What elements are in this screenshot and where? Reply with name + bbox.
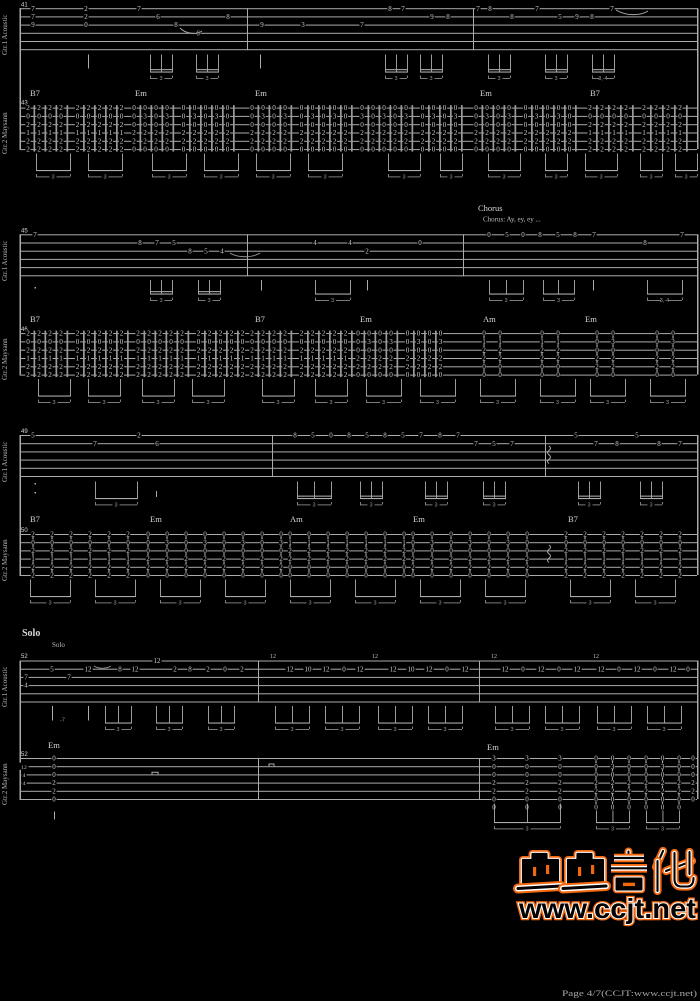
svg-text:5: 5 <box>558 13 562 21</box>
svg-text:7: 7 <box>93 440 97 448</box>
svg-text:0: 0 <box>393 104 397 112</box>
svg-text:Am: Am <box>483 314 496 324</box>
svg-text:2: 2 <box>272 371 276 379</box>
svg-text:2: 2 <box>279 563 283 571</box>
svg-text:1: 1 <box>482 338 486 346</box>
svg-text:3: 3 <box>382 113 386 121</box>
svg-text:0: 0 <box>482 330 486 338</box>
svg-text:1: 1 <box>109 129 113 137</box>
svg-text:2: 2 <box>624 104 628 112</box>
svg-text:5: 5 <box>204 247 208 255</box>
svg-text:12: 12 <box>670 665 678 673</box>
svg-text:2: 2 <box>389 355 393 363</box>
svg-text:2: 2 <box>158 346 162 354</box>
svg-text:2: 2 <box>300 371 304 379</box>
svg-text:2: 2 <box>524 137 528 145</box>
svg-text:2: 2 <box>602 572 606 580</box>
svg-text:2: 2 <box>26 137 30 145</box>
svg-text:3: 3 <box>103 175 106 181</box>
svg-text:2: 2 <box>485 129 489 137</box>
svg-text:2: 2 <box>197 346 201 354</box>
svg-text:7: 7 <box>592 231 596 239</box>
svg-text:5: 5 <box>311 432 315 440</box>
svg-text:2: 2 <box>76 371 80 379</box>
svg-text:8: 8 <box>643 239 647 247</box>
svg-text:2: 2 <box>52 787 56 795</box>
svg-text:3: 3 <box>430 539 434 547</box>
svg-text:0: 0 <box>556 330 560 338</box>
svg-text:0: 0 <box>492 796 496 804</box>
svg-text:2: 2 <box>193 129 197 137</box>
svg-text:1: 1 <box>48 355 52 363</box>
svg-text:3: 3 <box>492 503 495 509</box>
svg-text:7: 7 <box>401 5 405 13</box>
svg-text:0: 0 <box>485 104 489 112</box>
svg-text:0: 0 <box>428 346 432 354</box>
svg-text:2: 2 <box>322 346 326 354</box>
svg-text:0: 0 <box>525 771 529 779</box>
svg-text:Solo: Solo <box>22 628 40 639</box>
svg-text:1: 1 <box>26 355 30 363</box>
svg-text:2: 2 <box>594 779 598 787</box>
svg-text:0: 0 <box>344 121 348 129</box>
svg-text:0: 0 <box>557 665 561 673</box>
svg-text:0: 0 <box>59 338 63 346</box>
svg-text:2: 2 <box>98 346 102 354</box>
svg-text:0: 0 <box>307 531 311 539</box>
svg-text:0: 0 <box>260 572 264 580</box>
svg-text:0: 0 <box>411 572 415 580</box>
svg-text:0: 0 <box>677 796 681 804</box>
svg-text:0: 0 <box>498 330 502 338</box>
svg-text:2: 2 <box>417 363 421 371</box>
svg-text:2: 2 <box>120 330 124 338</box>
svg-text:2: 2 <box>600 146 604 154</box>
svg-text:0: 0 <box>525 547 529 555</box>
svg-text:0: 0 <box>653 665 657 673</box>
svg-text:0: 0 <box>564 539 568 547</box>
svg-text:3: 3 <box>506 539 510 547</box>
svg-text:2: 2 <box>492 787 496 795</box>
svg-text:0: 0 <box>468 531 472 539</box>
svg-text:7: 7 <box>67 674 71 682</box>
svg-text:0: 0 <box>326 572 330 580</box>
svg-text:7: 7 <box>419 432 423 440</box>
svg-text:0: 0 <box>402 531 406 539</box>
svg-text:2: 2 <box>322 363 326 371</box>
svg-text:2: 2 <box>120 121 124 129</box>
svg-text:0: 0 <box>48 338 52 346</box>
svg-text:0: 0 <box>439 346 443 354</box>
svg-text:2: 2 <box>48 137 52 145</box>
svg-text:2: 2 <box>109 146 113 154</box>
svg-text:0: 0 <box>344 113 348 121</box>
svg-text:3: 3 <box>207 298 210 304</box>
svg-text:2: 2 <box>48 346 52 354</box>
svg-text:0: 0 <box>644 763 648 771</box>
svg-text:0: 0 <box>611 796 615 804</box>
svg-text:2: 2 <box>556 355 560 363</box>
svg-text:2: 2 <box>659 531 663 539</box>
svg-text:3: 3 <box>671 338 675 346</box>
svg-text:3: 3 <box>611 763 615 771</box>
svg-text:2: 2 <box>165 563 169 571</box>
svg-text:0: 0 <box>279 547 283 555</box>
svg-text:3: 3 <box>143 113 147 121</box>
svg-text:2: 2 <box>165 137 169 145</box>
svg-text:2: 2 <box>525 555 529 563</box>
svg-text:3: 3 <box>360 113 364 121</box>
svg-text:2: 2 <box>59 330 63 338</box>
svg-text:0: 0 <box>612 113 616 121</box>
svg-text:2: 2 <box>393 129 397 137</box>
svg-text:2: 2 <box>272 129 276 137</box>
svg-text:2: 2 <box>76 104 80 112</box>
svg-text:0: 0 <box>507 121 511 129</box>
svg-text:0: 0 <box>132 121 136 129</box>
svg-text:3: 3 <box>394 76 397 82</box>
svg-text:2: 2 <box>360 137 364 145</box>
svg-text:1: 1 <box>666 129 670 137</box>
svg-text:0: 0 <box>367 371 371 379</box>
svg-text:2: 2 <box>261 371 265 379</box>
svg-text:2: 2 <box>169 363 173 371</box>
svg-text:0: 0 <box>322 113 326 121</box>
svg-text:1: 1 <box>678 129 682 137</box>
svg-text:3: 3 <box>331 298 334 304</box>
svg-text:2: 2 <box>219 363 223 371</box>
svg-text:2: 2 <box>624 137 628 145</box>
svg-text:0: 0 <box>624 113 628 121</box>
svg-text:0: 0 <box>222 539 226 547</box>
svg-text:0: 0 <box>654 113 658 121</box>
svg-text:2: 2 <box>37 330 41 338</box>
svg-text:2: 2 <box>382 137 386 145</box>
svg-text:2: 2 <box>443 137 447 145</box>
svg-text:2: 2 <box>678 146 682 154</box>
svg-text:0: 0 <box>378 346 382 354</box>
svg-text:0: 0 <box>406 371 410 379</box>
svg-text:2: 2 <box>443 129 447 137</box>
svg-text:1: 1 <box>120 129 124 137</box>
svg-text:8: 8 <box>657 440 661 448</box>
svg-text:2: 2 <box>365 247 369 255</box>
svg-text:3: 3 <box>261 113 265 121</box>
svg-text:0: 0 <box>52 796 56 804</box>
svg-text:1: 1 <box>602 555 606 563</box>
svg-text:2: 2 <box>307 555 311 563</box>
svg-text:2: 2 <box>640 547 644 555</box>
svg-text:2: 2 <box>644 779 648 787</box>
svg-text:2: 2 <box>240 665 244 673</box>
svg-text:2: 2 <box>208 346 212 354</box>
svg-text:0: 0 <box>474 146 478 154</box>
svg-text:Em: Em <box>480 88 492 98</box>
svg-text:2: 2 <box>26 363 30 371</box>
svg-text:B7: B7 <box>30 88 40 98</box>
svg-text:2: 2 <box>98 330 102 338</box>
svg-text:8: 8 <box>438 432 442 440</box>
svg-text:1: 1 <box>107 555 111 563</box>
svg-text:1: 1 <box>69 555 73 563</box>
svg-text:4: 4 <box>24 682 28 690</box>
svg-text:2: 2 <box>98 121 102 129</box>
svg-text:2: 2 <box>59 104 63 112</box>
svg-text:0: 0 <box>558 763 562 771</box>
svg-text:2: 2 <box>52 779 56 787</box>
svg-text:2: 2 <box>180 346 184 354</box>
svg-text:3: 3 <box>159 76 162 82</box>
svg-text:2: 2 <box>678 121 682 129</box>
svg-text:Em: Em <box>255 88 267 98</box>
svg-text:3: 3 <box>241 539 245 547</box>
svg-text:0: 0 <box>644 771 648 779</box>
svg-text:2: 2 <box>109 330 113 338</box>
svg-text:0: 0 <box>492 763 496 771</box>
svg-text:2: 2 <box>76 121 80 129</box>
svg-text:2: 2 <box>602 531 606 539</box>
svg-text:3: 3 <box>283 113 287 121</box>
svg-text:3: 3 <box>684 175 687 181</box>
svg-text:2: 2 <box>602 563 606 571</box>
svg-text:1: 1 <box>59 355 63 363</box>
svg-text:0: 0 <box>428 371 432 379</box>
svg-text:1: 1 <box>283 355 287 363</box>
svg-text:0: 0 <box>382 104 386 112</box>
svg-text:5: 5 <box>172 239 176 247</box>
svg-text:2: 2 <box>59 146 63 154</box>
svg-text:2: 2 <box>109 121 113 129</box>
svg-text:1: 1 <box>219 355 223 363</box>
svg-text:2: 2 <box>250 137 254 145</box>
svg-text:0: 0 <box>655 346 659 354</box>
svg-text:0: 0 <box>583 539 587 547</box>
svg-text:2: 2 <box>215 137 219 145</box>
svg-text:45: 45 <box>21 229 28 235</box>
svg-text:0: 0 <box>594 763 598 771</box>
svg-text:0: 0 <box>165 547 169 555</box>
svg-text:3: 3 <box>402 175 405 181</box>
svg-text:7: 7 <box>33 231 37 239</box>
svg-text:2: 2 <box>432 129 436 137</box>
svg-text:41: 41 <box>21 3 28 9</box>
svg-text:0: 0 <box>146 572 150 580</box>
svg-text:0: 0 <box>691 755 695 763</box>
svg-text:3: 3 <box>156 400 159 406</box>
svg-text:2: 2 <box>250 129 254 137</box>
svg-text:0: 0 <box>568 104 572 112</box>
svg-text:0: 0 <box>356 338 360 346</box>
svg-text:2: 2 <box>454 137 458 145</box>
svg-text:2: 2 <box>219 346 223 354</box>
svg-text:5: 5 <box>401 432 405 440</box>
svg-text:2: 2 <box>136 346 140 354</box>
svg-text:2: 2 <box>48 104 52 112</box>
svg-text:0: 0 <box>568 146 572 154</box>
svg-text:2: 2 <box>37 346 41 354</box>
svg-text:1: 1 <box>288 539 292 547</box>
svg-text:0: 0 <box>439 330 443 338</box>
svg-text:0: 0 <box>524 104 528 112</box>
svg-text:0: 0 <box>169 338 173 346</box>
svg-text:0: 0 <box>487 531 491 539</box>
svg-text:2: 2 <box>98 146 102 154</box>
svg-text:0: 0 <box>283 121 287 129</box>
svg-text:2: 2 <box>184 555 188 563</box>
svg-text:0: 0 <box>671 330 675 338</box>
svg-text:7: 7 <box>510 440 514 448</box>
svg-text:3: 3 <box>52 400 55 406</box>
svg-text:0: 0 <box>182 146 186 154</box>
svg-text:0: 0 <box>594 755 598 763</box>
svg-text:0: 0 <box>147 338 151 346</box>
svg-text:2: 2 <box>583 563 587 571</box>
svg-text:3: 3 <box>496 400 499 406</box>
svg-text:0: 0 <box>222 547 226 555</box>
svg-text:1: 1 <box>87 129 91 137</box>
svg-text:3: 3 <box>369 503 372 509</box>
svg-text:2: 2 <box>485 137 489 145</box>
svg-text:4: 4 <box>313 239 317 247</box>
svg-text:0: 0 <box>402 572 406 580</box>
svg-text:3: 3 <box>454 113 458 121</box>
svg-text:0: 0 <box>404 146 408 154</box>
svg-text:0: 0 <box>344 146 348 154</box>
svg-text:Em: Em <box>48 740 60 750</box>
svg-text:3,-4: 3,-4 <box>598 76 607 82</box>
svg-text:2: 2 <box>261 137 265 145</box>
svg-text:3: 3 <box>492 755 496 763</box>
svg-text:0: 0 <box>329 432 333 440</box>
svg-text:1: 1 <box>208 355 212 363</box>
svg-text:12: 12 <box>593 654 599 660</box>
svg-text:0: 0 <box>378 330 382 338</box>
svg-text:0: 0 <box>261 338 265 346</box>
svg-text:0: 0 <box>371 146 375 154</box>
svg-text:5: 5 <box>50 665 54 673</box>
svg-text:2: 2 <box>146 563 150 571</box>
svg-text:8: 8 <box>590 13 594 21</box>
svg-text:Gtr.2 Maysann: Gtr.2 Maysann <box>1 763 9 805</box>
svg-text:2: 2 <box>588 146 592 154</box>
svg-text:0: 0 <box>487 572 491 580</box>
svg-text:2: 2 <box>671 363 675 371</box>
svg-text:0: 0 <box>300 104 304 112</box>
svg-text:0: 0 <box>644 755 648 763</box>
svg-text:2: 2 <box>300 137 304 145</box>
svg-text:0: 0 <box>449 539 453 547</box>
svg-text:0: 0 <box>165 146 169 154</box>
svg-text:2: 2 <box>558 779 562 787</box>
svg-text:2: 2 <box>37 363 41 371</box>
svg-text:0: 0 <box>507 146 511 154</box>
svg-text:0: 0 <box>215 146 219 154</box>
svg-text:3: 3 <box>649 175 652 181</box>
svg-text:0: 0 <box>371 104 375 112</box>
svg-text:2: 2 <box>583 531 587 539</box>
svg-text:0: 0 <box>611 371 615 379</box>
svg-text:2: 2 <box>59 363 63 371</box>
svg-text:1: 1 <box>37 129 41 137</box>
svg-text:1: 1 <box>76 129 80 137</box>
svg-text:1: 1 <box>383 539 387 547</box>
svg-text:0: 0 <box>443 104 447 112</box>
svg-text:2: 2 <box>107 531 111 539</box>
svg-text:2: 2 <box>283 137 287 145</box>
svg-text:0: 0 <box>26 113 30 121</box>
svg-text:0: 0 <box>76 338 80 346</box>
svg-text:2: 2 <box>557 129 561 137</box>
svg-text:2: 2 <box>37 137 41 145</box>
svg-text:2: 2 <box>50 563 54 571</box>
svg-text:12: 12 <box>21 765 27 771</box>
svg-text:2: 2 <box>428 363 432 371</box>
svg-text:10: 10 <box>408 665 416 673</box>
svg-text:0: 0 <box>417 330 421 338</box>
svg-text:1: 1 <box>640 555 644 563</box>
svg-text:0: 0 <box>602 539 606 547</box>
svg-text:7: 7 <box>535 5 539 13</box>
svg-text:0: 0 <box>389 346 393 354</box>
svg-text:2: 2 <box>371 137 375 145</box>
svg-text:3: 3 <box>662 727 665 733</box>
svg-text:0: 0 <box>485 146 489 154</box>
svg-text:3: 3 <box>290 727 293 733</box>
svg-text:1: 1 <box>307 539 311 547</box>
svg-text:1: 1 <box>158 355 162 363</box>
svg-text:2: 2 <box>404 129 408 137</box>
svg-text:2: 2 <box>535 129 539 137</box>
svg-text:3: 3 <box>556 400 559 406</box>
svg-text:2: 2 <box>26 146 30 154</box>
svg-text:0: 0 <box>671 346 675 354</box>
svg-text:3: 3 <box>606 400 609 406</box>
svg-text:0: 0 <box>356 346 360 354</box>
svg-text:2: 2 <box>215 129 219 137</box>
svg-text:2: 2 <box>143 137 147 145</box>
svg-text:2: 2 <box>31 547 35 555</box>
svg-text:2: 2 <box>654 104 658 112</box>
svg-text:12: 12 <box>491 654 497 660</box>
svg-text:0: 0 <box>272 338 276 346</box>
svg-text:3: 3 <box>367 338 371 346</box>
svg-text:2: 2 <box>659 572 663 580</box>
svg-text:1: 1 <box>556 338 560 346</box>
svg-text:Em: Em <box>360 314 372 324</box>
svg-text:0: 0 <box>146 539 150 547</box>
svg-text:2: 2 <box>84 13 88 21</box>
svg-text:2: 2 <box>621 547 625 555</box>
svg-text:0: 0 <box>222 531 226 539</box>
svg-text:2: 2 <box>507 129 511 137</box>
svg-text:52: 52 <box>21 654 28 660</box>
svg-text:0: 0 <box>600 113 604 121</box>
svg-text:2: 2 <box>568 129 572 137</box>
svg-text:3: 3 <box>323 175 326 181</box>
svg-text:2: 2 <box>525 787 529 795</box>
svg-text:3: 3 <box>382 400 385 406</box>
svg-text:7: 7 <box>456 432 460 440</box>
svg-text:2: 2 <box>449 563 453 571</box>
svg-text:0: 0 <box>439 371 443 379</box>
svg-text:2: 2 <box>98 104 102 112</box>
svg-text:0: 0 <box>120 338 124 346</box>
svg-text:7: 7 <box>360 21 364 29</box>
svg-text:9: 9 <box>430 13 434 21</box>
svg-text:0: 0 <box>404 121 408 129</box>
svg-text:0: 0 <box>311 338 315 346</box>
svg-text:3: 3 <box>525 827 528 833</box>
